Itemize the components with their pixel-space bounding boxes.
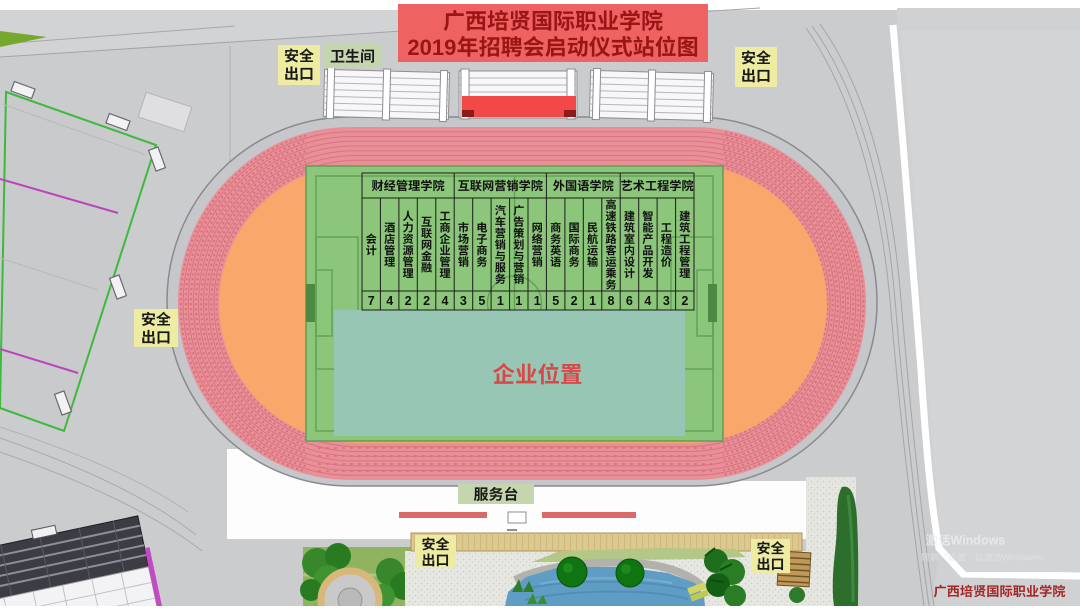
svg-text:1: 1 — [497, 294, 504, 308]
svg-text:4: 4 — [442, 294, 449, 308]
svg-text:2: 2 — [571, 294, 578, 308]
svg-text:8: 8 — [608, 294, 615, 308]
svg-text:3: 3 — [663, 294, 670, 308]
svg-text:Windows: Windows — [1002, 552, 1041, 562]
svg-text:7: 7 — [368, 294, 375, 308]
svg-text:1: 1 — [589, 294, 596, 308]
svg-text:5: 5 — [478, 294, 485, 308]
svg-text:3: 3 — [460, 294, 467, 308]
svg-text:4: 4 — [386, 294, 393, 308]
svg-text:5: 5 — [552, 294, 559, 308]
svg-text:1: 1 — [534, 294, 541, 308]
svg-text:1: 1 — [515, 294, 522, 308]
svg-text:4: 4 — [644, 294, 651, 308]
svg-text:6: 6 — [626, 294, 633, 308]
svg-text:2019: 2019 — [407, 35, 456, 60]
svg-text:2: 2 — [423, 294, 430, 308]
svg-text:2: 2 — [405, 294, 412, 308]
svg-text:Windows: Windows — [951, 534, 1006, 548]
svg-text:2: 2 — [681, 294, 688, 308]
